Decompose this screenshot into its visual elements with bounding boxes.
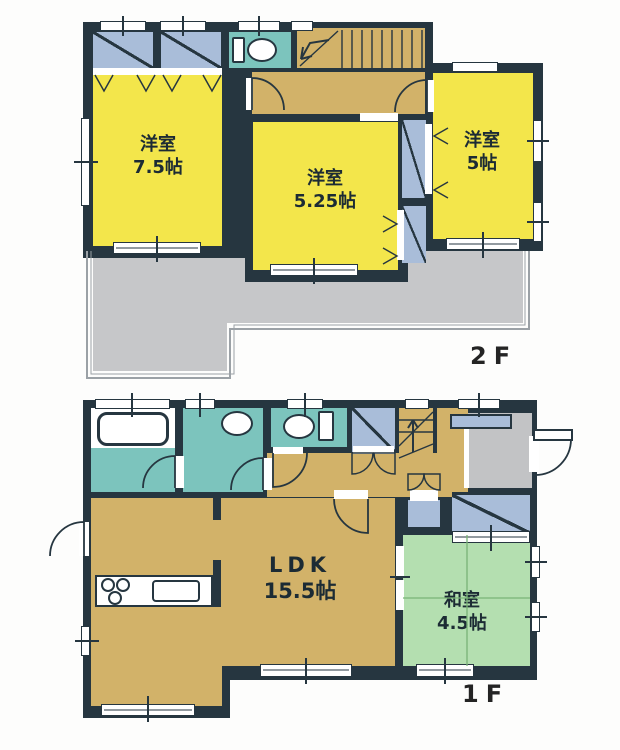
door-opening — [273, 447, 303, 454]
sliding-door — [452, 531, 530, 543]
storage — [408, 500, 440, 527]
wall — [213, 498, 221, 520]
door-opening — [334, 490, 368, 499]
stairs-1f — [399, 408, 433, 458]
window — [287, 399, 323, 409]
wall — [213, 560, 221, 607]
door-opening — [263, 458, 272, 490]
toilet-bowl-icon — [283, 414, 315, 439]
window — [95, 399, 170, 409]
storage-opening — [410, 490, 438, 501]
room-ldk — [91, 666, 222, 706]
window — [531, 602, 540, 632]
floor-label-1f: 1F — [462, 680, 509, 708]
shoe-cabinet — [450, 414, 512, 429]
partition-opening — [396, 546, 404, 576]
room-name: 和室 — [402, 590, 522, 613]
door-opening — [175, 456, 184, 488]
closet — [452, 495, 530, 533]
sliding-window — [416, 664, 474, 677]
window — [531, 546, 540, 578]
closet-opening — [353, 446, 394, 454]
entrance-step — [464, 428, 469, 488]
stove-burner-icon — [101, 578, 115, 592]
room-label: 和室 4.5帖 — [402, 590, 522, 635]
sliding-window — [101, 704, 195, 716]
stove-burner-icon — [116, 578, 130, 592]
room-name: LDK — [238, 552, 362, 578]
entrance-door-leaf — [533, 429, 573, 441]
door-opening — [529, 436, 539, 472]
floor-plan: 洋室 7.5帖 洋室 5.25帖 洋室 5帖 2F — [0, 0, 620, 750]
window — [185, 399, 215, 409]
sliding-window — [260, 664, 352, 677]
room-size: 4.5帖 — [402, 613, 522, 636]
door-opening — [79, 522, 89, 556]
window — [405, 399, 429, 409]
window — [458, 399, 500, 409]
kitchen-sink-icon — [152, 580, 200, 602]
stove-burner-icon — [108, 591, 122, 605]
toilet-tank-icon — [318, 411, 334, 441]
washbasin-icon — [221, 411, 253, 436]
bathtub-icon — [97, 412, 169, 446]
room-size: 15.5帖 — [238, 578, 362, 604]
floor-1f: LDK 15.5帖 和室 4.5帖 1F — [0, 0, 620, 750]
room-label: LDK 15.5帖 — [238, 552, 362, 605]
window — [81, 626, 90, 656]
